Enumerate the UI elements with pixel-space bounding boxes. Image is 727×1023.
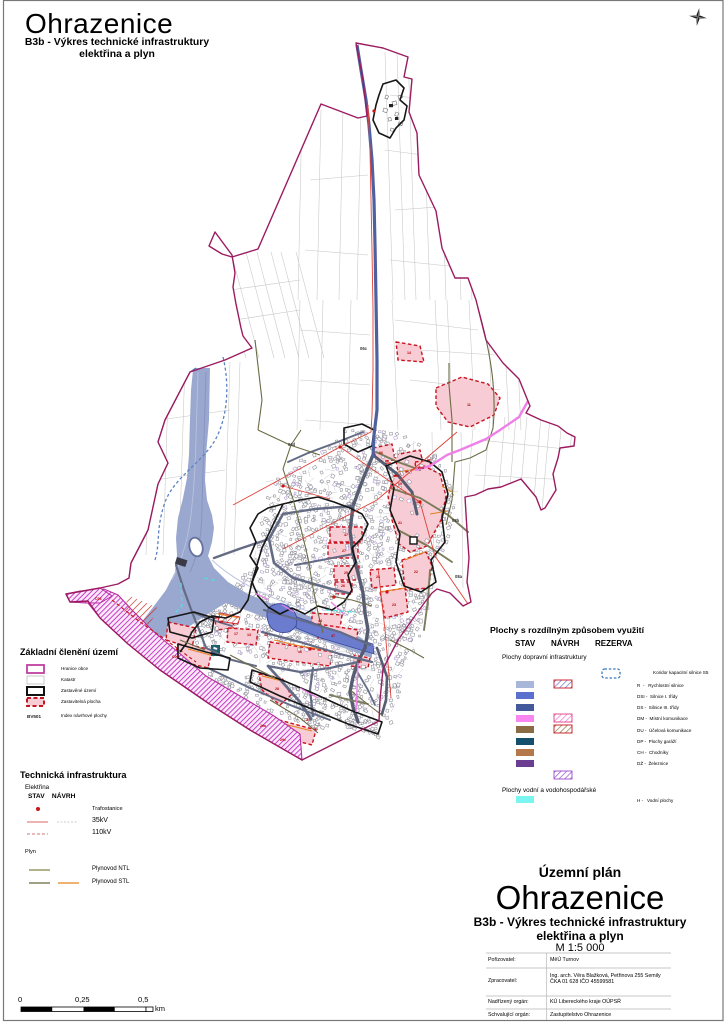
svg-text:13: 13 <box>247 633 251 637</box>
svg-text:11: 11 <box>467 403 471 407</box>
svg-text:22: 22 <box>414 570 418 574</box>
svg-text:31: 31 <box>314 727 318 731</box>
svg-text:28: 28 <box>275 687 279 691</box>
svg-text:06: 06 <box>379 451 383 455</box>
svg-text:25: 25 <box>344 571 348 575</box>
svg-text:24: 24 <box>376 575 380 579</box>
svg-text:BV501: BV501 <box>27 714 41 719</box>
svg-text:29a: 29a <box>260 724 267 728</box>
svg-text:20b: 20b <box>418 466 425 470</box>
svg-text:18a: 18a <box>385 461 392 465</box>
svg-text:21: 21 <box>398 521 402 525</box>
svg-text:08b: 08b <box>452 518 460 523</box>
svg-text:17: 17 <box>234 632 238 636</box>
svg-text:C06: C06 <box>95 597 102 601</box>
svg-text:45: 45 <box>219 620 223 624</box>
svg-text:08a: 08a <box>455 574 463 579</box>
svg-text:27: 27 <box>342 549 346 553</box>
svg-text:29c: 29c <box>280 738 286 742</box>
svg-text:18c: 18c <box>393 474 399 478</box>
svg-text:26: 26 <box>341 584 345 588</box>
svg-text:12: 12 <box>416 500 420 504</box>
svg-text:06c: 06c <box>360 346 368 351</box>
svg-text:30: 30 <box>306 718 310 722</box>
svg-text:14: 14 <box>407 351 411 355</box>
svg-text:47: 47 <box>344 533 348 537</box>
svg-text:C06: C06 <box>172 655 179 659</box>
svg-text:50: 50 <box>358 660 362 664</box>
svg-text:47: 47 <box>331 634 335 638</box>
svg-text:44: 44 <box>318 619 322 623</box>
svg-text:16: 16 <box>298 650 302 654</box>
svg-text:19: 19 <box>398 482 402 486</box>
svg-text:06d: 06d <box>288 442 296 447</box>
svg-text:43: 43 <box>264 633 268 637</box>
svg-text:23: 23 <box>392 603 396 607</box>
